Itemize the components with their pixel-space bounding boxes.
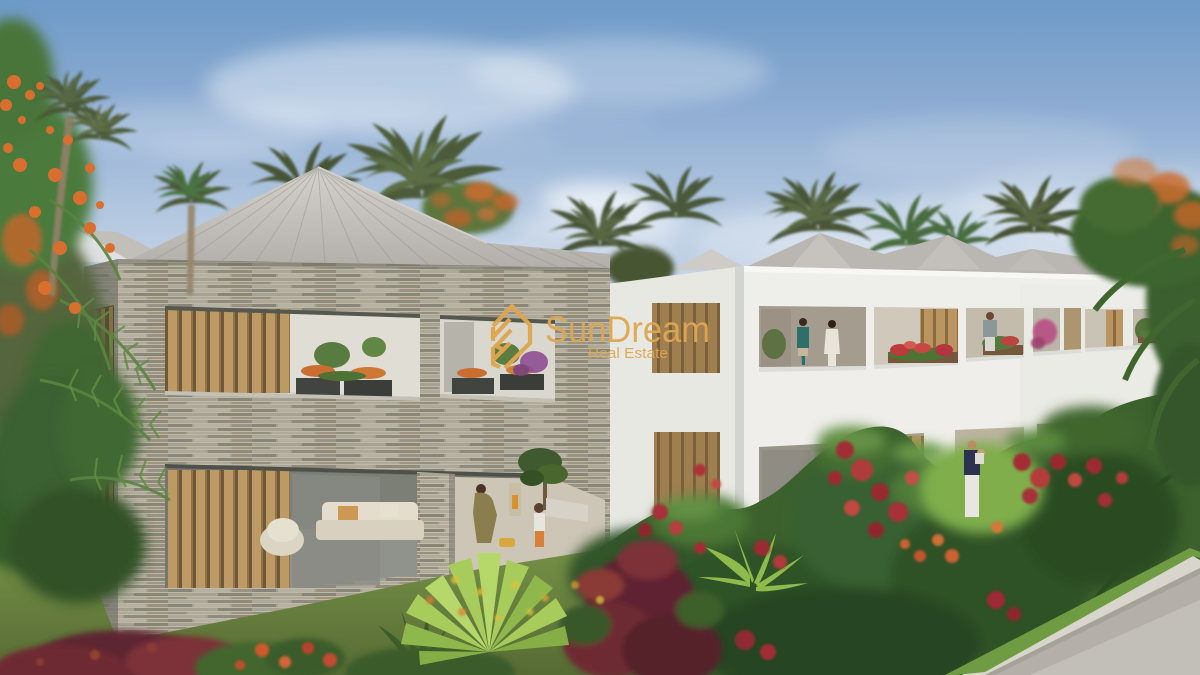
svg-text:Real Estate: Real Estate	[588, 346, 668, 362]
svg-text:SunDream: SunDream	[545, 309, 710, 350]
